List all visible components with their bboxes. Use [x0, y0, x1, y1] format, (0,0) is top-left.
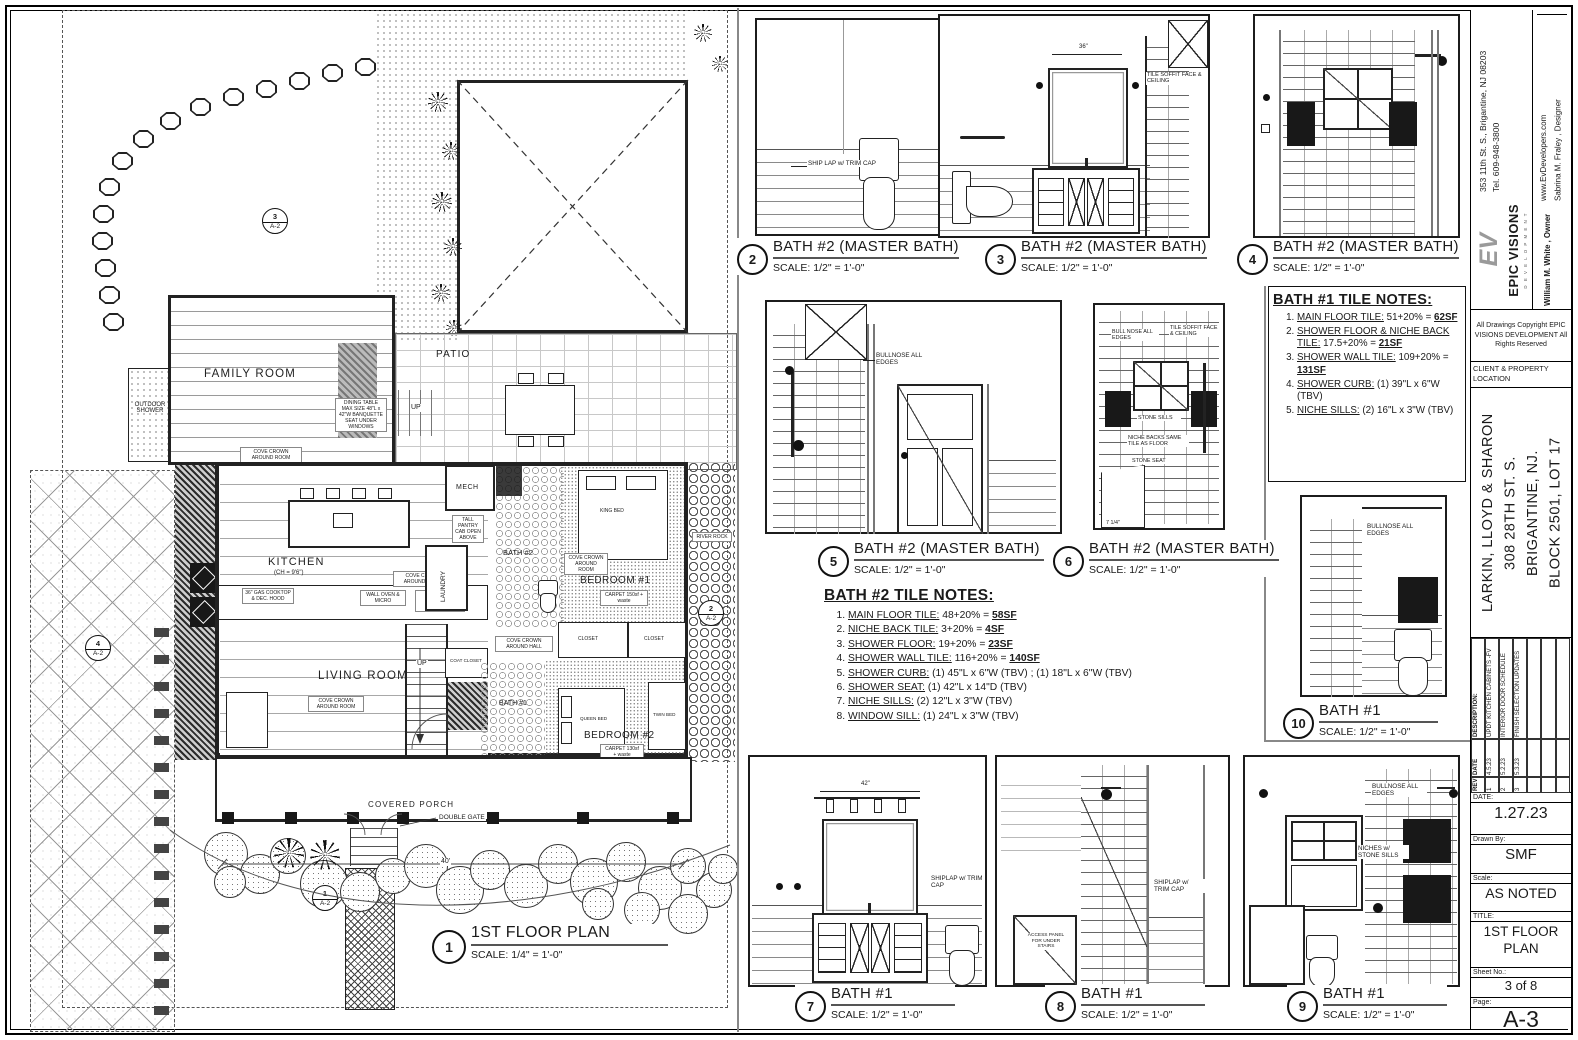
rev-cell: 2 [1499, 777, 1513, 793]
drawn-by-value: SMF [1471, 846, 1571, 863]
toilet [1303, 935, 1339, 987]
elevation-scale: SCALE: 1/2" = 1'-0" [1323, 1009, 1447, 1021]
empty-cell [1527, 777, 1541, 793]
bullnose-note: BULL NOSE ALL EDGES [1111, 329, 1159, 341]
sheet-no-label: Sheet No.: [1471, 968, 1571, 978]
elevation-title-9: 9 BATH #1SCALE: 1/2" = 1'-0" [1287, 985, 1447, 1022]
elevation-number: 7 [795, 991, 826, 1022]
stone-sills-note: STONE SILLS [1137, 415, 1181, 421]
elevation-2: SHIP LAP w/ TRIM CAP [755, 18, 947, 236]
elevation-title-5: 5 BATH #2 (MASTER BATH)SCALE: 1/2" = 1'-… [818, 540, 1044, 577]
empty-cell [1556, 777, 1570, 793]
dimension-7-1-4: 7 1/4" [1105, 520, 1121, 526]
elevation-scale: SCALE: 1/2" = 1'-0" [1081, 1009, 1205, 1021]
toilet [942, 925, 980, 985]
elevation-10: BULLNOSE ALL EDGES [1300, 495, 1447, 697]
bullnose-note: BULLNOSE ALL EDGES [875, 352, 931, 366]
shiplap-note: SHIPLAP w/ TRIM CAP [1153, 879, 1205, 893]
up-label-patio: UP [410, 404, 422, 412]
bath1-notes-list: MAIN FLOOR TILE: 51+20% = 62SF SHOWER FL… [1273, 312, 1461, 418]
empty-cell [1556, 739, 1570, 777]
section-divider [737, 8, 739, 1032]
toilet [1390, 629, 1434, 695]
plan-title: 1 1ST FLOOR PLAN SCALE: 1/4" = 1'-0" [432, 924, 668, 964]
company-logo: EV [1475, 233, 1504, 266]
bath1-notes-title: BATH #1 TILE NOTES: [1273, 292, 1461, 308]
door-handle [901, 452, 908, 459]
stone-seat [1101, 465, 1145, 528]
company-sub: D E V E L O P M E N T [1523, 212, 1528, 289]
window-lower-sash [1291, 865, 1357, 907]
bath2-notes-title: BATH #2 TILE NOTES: [824, 587, 1220, 605]
copyright-note: All Drawings Copyright EPIC VISIONS DEVE… [1471, 310, 1571, 362]
empty-cell [1527, 739, 1541, 777]
tile-niche [1105, 391, 1131, 427]
elevation-3: TILE SOFFIT FACE & CEILING 36" [938, 14, 1210, 238]
bath2-notes-list: MAIN FLOOR TILE: 48+20% = 58SF NICHE BAC… [824, 609, 1220, 723]
elevation-title-text: BATH #1 [831, 985, 955, 1006]
elevation-scale: SCALE: 1/2" = 1'-0" [1089, 564, 1279, 576]
date-cell: 4.5.23 [1485, 739, 1499, 777]
elevation-title-2: 2 BATH #2 (MASTER BATH)SCALE: 1/2" = 1'-… [737, 238, 949, 275]
elevation-number: 10 [1283, 708, 1314, 739]
niches-note: NICHES w/ STONE SILLS [1357, 845, 1409, 859]
elevation-6: BULL NOSE ALL EDGES TILE SOFFIT FACE & C… [1093, 303, 1225, 530]
sconce [776, 883, 783, 890]
date-value: 1.27.23 [1471, 805, 1571, 823]
empty-cell [1541, 777, 1555, 793]
website-designer: www.EvDevelopers.com Sabrina M. Fraley ,… [1537, 14, 1567, 201]
elevation-title-8: 8 BATH #1SCALE: 1/2" = 1'-0" [1045, 985, 1205, 1022]
company-name: EPIC VISIONS [1506, 204, 1521, 297]
stone-seat-note: STONE SEAT [1131, 458, 1173, 464]
elevation-title-3: 3 BATH #2 (MASTER BATH)SCALE: 1/2" = 1'-… [985, 238, 1201, 275]
elevation-title-7: 7 BATH #1SCALE: 1/2" = 1'-0" [795, 985, 955, 1022]
elevation-title-text: BATH #1 [1323, 985, 1447, 1006]
desc-cell: INTERIOR DOOR SCHEDULE [1499, 638, 1513, 739]
tile-niche [1287, 102, 1315, 146]
elevation-5: BULLNOSE ALL EDGES [765, 300, 1062, 534]
shower-head [1437, 56, 1447, 66]
plan-linework [8, 8, 738, 1032]
bath1-tile-notes: BATH #1 TILE NOTES: MAIN FLOOR TILE: 51+… [1268, 286, 1466, 482]
elevation-scale: SCALE: 1/2" = 1'-0" [1273, 262, 1459, 274]
access-panel-note: ACCESS PANEL FOR UNDER STAIRS [1023, 933, 1069, 950]
grab-bar [960, 136, 1005, 139]
bullnose-note: BULLNOSE ALL EDGES [1366, 523, 1420, 537]
faucet [868, 903, 871, 913]
sheet-no-value: 3 of 8 [1471, 978, 1571, 993]
medicine-cabinet [1398, 577, 1438, 623]
scale-label: Scale: [1471, 874, 1571, 884]
bath2-tile-notes: BATH #2 TILE NOTES: MAIN FLOOR TILE: 48+… [822, 585, 1222, 737]
sheet-no-section: Sheet No.: 3 of 8 [1471, 968, 1571, 998]
scale-value: AS NOTED [1471, 885, 1571, 901]
tile-niche [1403, 819, 1451, 863]
elevation-4 [1253, 14, 1460, 238]
date-cell: 5.2.23 [1499, 739, 1513, 777]
title-label: TITLE: [1471, 912, 1571, 922]
drawn-by-section: Drawn By: SMF [1471, 835, 1571, 874]
elevation-number: 6 [1053, 546, 1084, 577]
elevation-scale: SCALE: 1/2" = 1'-0" [831, 1009, 955, 1021]
desc-cell: FINISH SELECTION UPDATES [1513, 638, 1527, 739]
elevation-number: 4 [1237, 244, 1268, 275]
plan-number: 1 [432, 930, 466, 964]
light-bulb [874, 799, 882, 813]
date-label: DATE: [1471, 793, 1571, 803]
mirror [822, 819, 918, 915]
sconce [1132, 82, 1139, 89]
date-section: DATE: 1.27.23 [1471, 793, 1571, 835]
shower-head [1449, 789, 1458, 798]
elevation-number: 2 [737, 244, 768, 275]
scale-section: Scale: AS NOTED [1471, 874, 1571, 912]
rev-cell: 1 [1485, 777, 1499, 793]
elevation-number: 5 [818, 546, 849, 577]
empty-cell [1556, 638, 1570, 739]
empty-cell [1527, 638, 1541, 739]
elevation-title-text: BATH #1 [1319, 702, 1438, 723]
elevation-9: BULLNOSE ALL EDGES NICHES w/ STONE SILLS [1243, 755, 1460, 987]
sconce [794, 883, 801, 890]
sconce [1036, 82, 1043, 89]
window-upper-sash [1291, 821, 1357, 861]
shower-valve [1373, 903, 1383, 913]
cabinet [1249, 905, 1305, 985]
elevation-title-text: BATH #2 (MASTER BATH) [773, 238, 959, 259]
elevation-title-text: BATH #2 (MASTER BATH) [1089, 540, 1279, 561]
empty-cell [1541, 739, 1555, 777]
elevation-7: 42" SHIPLAP w/ TRIM CAP [748, 755, 987, 987]
elevation-number: 9 [1287, 991, 1318, 1022]
elevation-title-text: BATH #1 [1081, 985, 1205, 1006]
light-bulb [898, 799, 906, 813]
tile-soffit-note: TILE SOFFIT FACE & CEILING [1169, 325, 1221, 337]
empty-cell [1541, 638, 1555, 739]
title-section: TITLE: 1ST FLOOR PLAN [1471, 912, 1571, 968]
desc-header: DESCRIPTION: [1471, 638, 1485, 739]
elevation-scale: SCALE: 1/2" = 1'-0" [1021, 262, 1207, 274]
client-info: LARKIN, LLOYD & SHARON 308 28TH ST. S. B… [1471, 388, 1571, 638]
shiplap-note: SHIPLAP w/ TRIM CAP [930, 875, 984, 889]
titleblock-branding: 353 11th St. S., Brigantine, NJ 08203 Te… [1471, 10, 1571, 310]
fixture [1263, 94, 1270, 101]
client-header: CLIENT & PROPERTY LOCATION [1471, 362, 1571, 388]
rev-header: REV [1471, 777, 1485, 793]
elevation-number: 8 [1045, 991, 1076, 1022]
elevation-number: 3 [985, 244, 1016, 275]
double-gate-label: DOUBLE GATE [438, 814, 486, 821]
sconce [1259, 789, 1268, 798]
dimension-36: 36" [1078, 44, 1089, 51]
shower-head [785, 366, 794, 375]
company-address: 353 11th St. S., Brigantine, NJ 08203 Te… [1477, 14, 1503, 192]
elevation-title-text: BATH #2 (MASTER BATH) [1273, 238, 1459, 259]
niche-backs-note: NICHE BACKS SAME TILE AS FLOOR [1127, 435, 1189, 447]
up-label-stair: UP [416, 660, 428, 668]
elevation-scale: SCALE: 1/2" = 1'-0" [773, 262, 959, 274]
faucet [1085, 158, 1088, 168]
page-value: A-3 [1471, 1008, 1571, 1031]
floor-plan-area: OUTDOOR SHOWER FAMILY ROOM DINING TABLE … [8, 8, 738, 1032]
tile-niche [1389, 102, 1417, 146]
elevation-title-4: 4 BATH #2 (MASTER BATH)SCALE: 1/2" = 1'-… [1237, 238, 1457, 275]
shower-bar [1203, 363, 1206, 453]
toilet [952, 166, 1012, 234]
light-bulb [850, 799, 858, 813]
shower-valve [793, 440, 804, 451]
drawing-sheet: OUTDOOR SHOWER FAMILY ROOM DINING TABLE … [0, 0, 1578, 1040]
elevation-title-6: 6 BATH #2 (MASTER BATH)SCALE: 1/2" = 1'-… [1053, 540, 1279, 577]
plan-title-text: 1ST FLOOR PLAN [471, 924, 668, 946]
mirror [1048, 68, 1128, 168]
elevation-scale: SCALE: 1/2" = 1'-0" [854, 564, 1044, 576]
notes-divider-v [1264, 286, 1266, 742]
client-lines: LARKIN, LLOYD & SHARON 308 28TH ST. S. B… [1477, 394, 1567, 632]
elevation-title-text: BATH #2 (MASTER BATH) [1021, 238, 1207, 259]
title-value: 1ST FLOOR PLAN [1471, 924, 1571, 958]
plan-scale: SCALE: 1/4" = 1'-0" [471, 949, 668, 961]
revision-table: REV DATE DESCRIPTION: 1 4.5.23 UPDT KITC… [1471, 638, 1571, 793]
elevation-title-text: BATH #2 (MASTER BATH) [854, 540, 1044, 561]
tile-niche [1403, 875, 1451, 923]
desc-cell: UPDT KITCHEN CABINETS -FV [1485, 638, 1499, 739]
dimension-42: 42" [860, 781, 871, 788]
owner-name: William M. White , Owner [1543, 206, 1552, 306]
toilet [855, 138, 901, 230]
date-header: DATE [1471, 739, 1485, 777]
page-section: Page: A-3 [1471, 998, 1571, 1029]
notes-divider-h [1264, 740, 1470, 742]
elevation-title-10: 10 BATH #1SCALE: 1/2" = 1'-0" [1283, 702, 1438, 739]
date-cell: 5.3.23 [1513, 739, 1527, 777]
elevation-scale: SCALE: 1/2" = 1'-0" [1319, 726, 1438, 738]
rev-cell: 3 [1513, 777, 1527, 793]
tp-holder [1261, 124, 1270, 133]
elevation-8: ACCESS PANEL FOR UNDER STAIRS SHIPLAP w/… [995, 755, 1230, 987]
tile-soffit-note: TILE SOFFIT FACE & CEILING [1146, 72, 1206, 85]
dimension-40ft: 40' [440, 858, 451, 866]
drawn-by-label: Drawn By: [1471, 835, 1571, 845]
bullnose-note: BULLNOSE ALL EDGES [1371, 783, 1427, 797]
shiplap-note: SHIP LAP w/ TRIM CAP [807, 160, 883, 167]
title-block: 353 11th St. S., Brigantine, NJ 08203 Te… [1470, 10, 1571, 1029]
light-bulb [826, 799, 834, 813]
